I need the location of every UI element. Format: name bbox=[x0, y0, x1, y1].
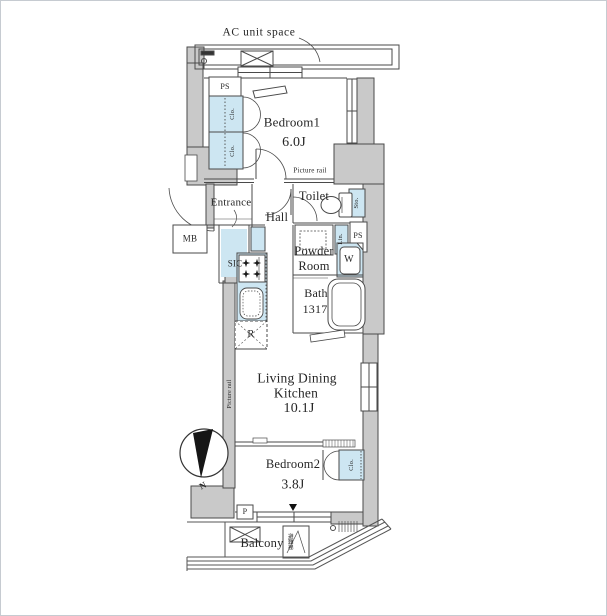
railing-end-hatch bbox=[339, 521, 357, 532]
bath-label: Bath bbox=[304, 287, 327, 299]
balcony-label: Balcony bbox=[240, 537, 283, 550]
ps-right-label: PS bbox=[353, 232, 362, 240]
closet1b-label: Clo. bbox=[230, 145, 237, 157]
bedroom2-label: Bedroom2 bbox=[266, 458, 320, 471]
washer-label: W bbox=[344, 255, 354, 265]
bedroom1-label: Bedroom1 bbox=[264, 116, 320, 129]
pipe-space-label: P bbox=[243, 508, 248, 516]
hall-label: Hall bbox=[266, 211, 288, 224]
fridge-label: R bbox=[247, 330, 254, 341]
closet1a-label: Clo. bbox=[230, 108, 237, 120]
ldk-size-label: 10.1J bbox=[284, 402, 315, 416]
powder-bath bbox=[293, 222, 367, 342]
evacuation-hatch-label: 避難梯 bbox=[286, 534, 292, 551]
stove-icon bbox=[239, 255, 265, 282]
ldk-label-line2: Kitchen bbox=[274, 386, 318, 400]
picture-rail-top-label: Picture rail bbox=[293, 168, 326, 175]
bedroom2-size-label: 3.8J bbox=[282, 477, 305, 491]
wall-notch bbox=[185, 155, 197, 181]
closet2-label: Clo. bbox=[349, 459, 356, 471]
toilet-label: Toilet bbox=[299, 190, 329, 203]
sink-icon bbox=[240, 288, 263, 319]
bedroom1-size-label: 6.0J bbox=[282, 136, 306, 150]
bath-size-label: 1317 bbox=[303, 303, 328, 315]
ac-unit-space-label: AC unit space bbox=[223, 27, 296, 39]
ps-top-label: PS bbox=[220, 83, 229, 91]
floor-plan-page: AC unit space PS Clo. Clo. Bedroom1 6.0J… bbox=[0, 0, 607, 616]
compass-icon bbox=[180, 429, 228, 478]
picture-rail-left-label: Picture rail bbox=[227, 380, 233, 409]
hanger-pipe-hatch bbox=[323, 440, 355, 447]
bathtub-icon bbox=[328, 279, 365, 330]
meter-box-label: MB bbox=[183, 235, 197, 244]
storage-label: Sto. bbox=[354, 197, 361, 208]
ldk-label-line1: Living Dining bbox=[257, 371, 336, 385]
powder-room-label-line2: Room bbox=[298, 260, 329, 273]
entrance-label: Entrance bbox=[211, 198, 252, 209]
ac-unit-duct bbox=[195, 38, 399, 69]
sic-label: SIC bbox=[228, 260, 243, 269]
linen-label: Lin. bbox=[338, 233, 345, 244]
powder-room-label-line1: Powder bbox=[294, 245, 333, 258]
